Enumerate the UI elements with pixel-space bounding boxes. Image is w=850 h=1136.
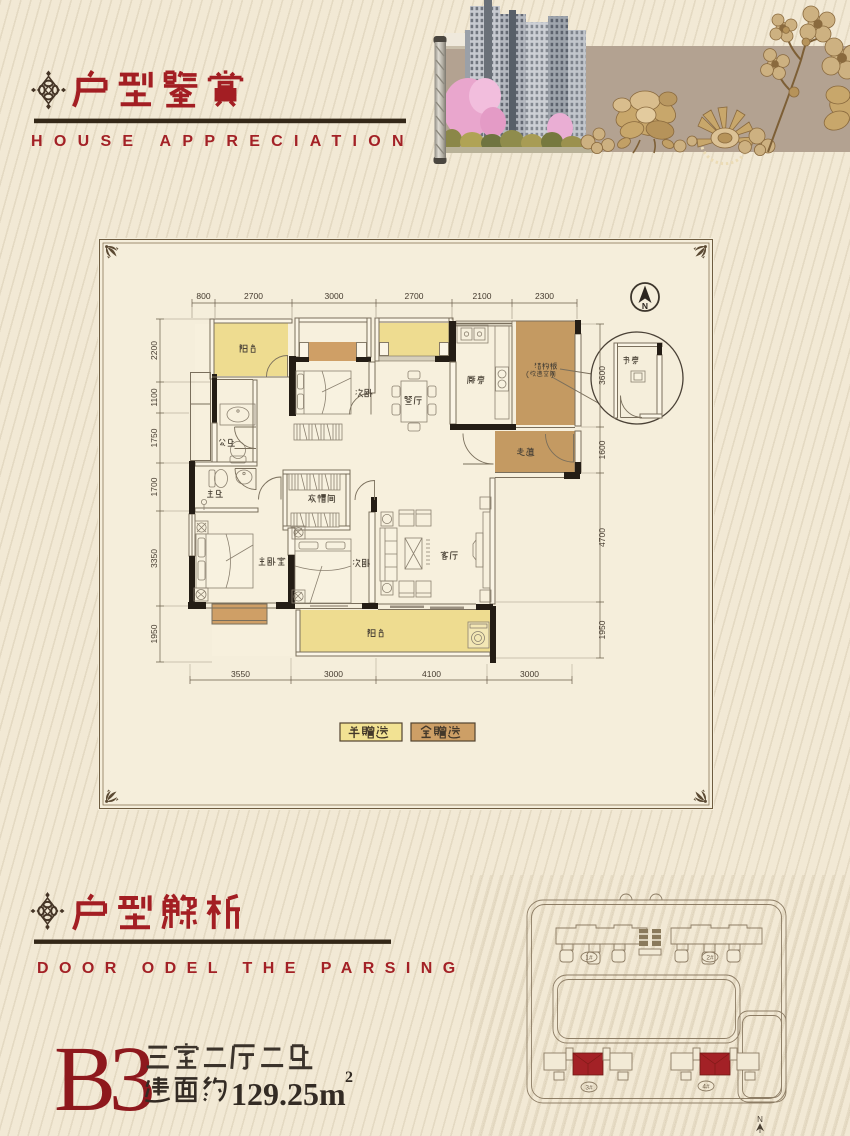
svg-text:4#: 4#	[702, 1084, 710, 1091]
svg-text:2700: 2700	[405, 291, 424, 301]
svg-text:HOUSE APPRECIATION: HOUSE APPRECIATION	[31, 133, 415, 150]
svg-text:DOOR ODEL THE PARSING: DOOR ODEL THE PARSING	[37, 960, 466, 977]
svg-text:3350: 3350	[149, 549, 159, 568]
svg-text:1950: 1950	[149, 624, 159, 643]
svg-text:4100: 4100	[422, 669, 441, 679]
svg-text:3550: 3550	[231, 669, 250, 679]
svg-text:3000: 3000	[324, 669, 343, 679]
svg-text:3600: 3600	[597, 366, 607, 385]
svg-text:3000: 3000	[325, 291, 344, 301]
svg-text:3#: 3#	[585, 1085, 593, 1092]
svg-text:2: 2	[345, 1069, 353, 1086]
svg-text:1#: 1#	[585, 955, 593, 962]
svg-text:2200: 2200	[149, 341, 159, 360]
svg-text:1950: 1950	[597, 620, 607, 639]
svg-text:129.25m: 129.25m	[231, 1076, 346, 1112]
svg-text:N: N	[642, 301, 648, 311]
svg-text:2100: 2100	[473, 291, 492, 301]
svg-text:2300: 2300	[535, 291, 554, 301]
svg-text:3000: 3000	[520, 669, 539, 679]
svg-text:2#: 2#	[706, 955, 714, 962]
svg-text:1100: 1100	[149, 388, 159, 407]
svg-text:N: N	[757, 1115, 763, 1124]
svg-text:1600: 1600	[597, 440, 607, 459]
svg-text:4700: 4700	[597, 528, 607, 547]
svg-text:B3: B3	[54, 1028, 152, 1131]
svg-text:1700: 1700	[149, 477, 159, 496]
svg-text:800: 800	[196, 291, 210, 301]
svg-text:2700: 2700	[244, 291, 263, 301]
svg-text:1750: 1750	[149, 428, 159, 447]
